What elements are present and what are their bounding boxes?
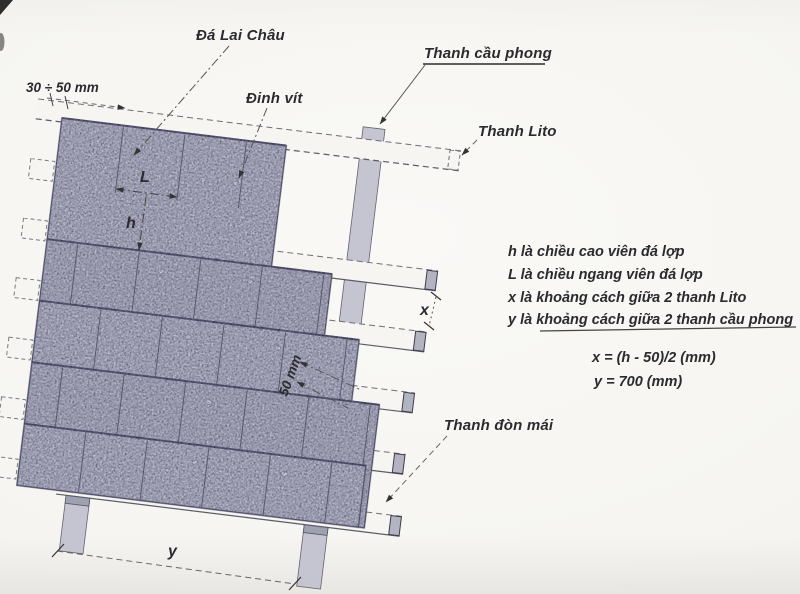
screw-hole — [205, 399, 212, 404]
screw-hole — [199, 177, 206, 182]
label-thanh-cau-phong: Thanh cầu phong — [424, 45, 552, 62]
label-thanh-lito: Thanh Lito — [478, 123, 557, 140]
label-dim-h: h — [126, 215, 136, 232]
scan-corner-artifact — [0, 0, 13, 15]
batten-end-cap — [389, 516, 402, 536]
label-dim-30-50: 30 ÷ 50 mm — [26, 80, 99, 95]
leader-thanh-lito — [462, 140, 477, 155]
label-da-lai-chau: Đá Lai Châu — [196, 27, 285, 44]
formula-x: x = (h - 50)/2 (mm) — [591, 350, 716, 366]
label-dim-x: x — [419, 302, 430, 319]
batten-end-cap — [425, 270, 438, 290]
batten-end-cap — [402, 392, 415, 412]
screw-hole — [192, 460, 199, 465]
screw-hole — [167, 173, 174, 178]
legend-block: h là chiều cao viên đá lợp L là chiều ng… — [507, 244, 793, 328]
formula-y: y = 700 (mm) — [593, 374, 682, 390]
screw-hole — [68, 161, 75, 166]
legend-line-y: y là khoảng cách giữa 2 thanh cầu phong — [507, 312, 793, 328]
roof-assembly — [0, 87, 462, 594]
legend-line-x: x là khoảng cách giữa 2 thanh Lito — [507, 290, 747, 306]
lito-batten-stub — [6, 337, 32, 360]
screw-hole — [247, 280, 254, 285]
screw-hole — [158, 269, 165, 274]
label-thanh-don-mai: Thanh đòn mái — [444, 417, 554, 434]
legend-line-L: L là chiều ngang viên đá lợp — [508, 267, 703, 283]
roof-tile-installation-diagram: Đá Lai Châu Đinh vít 30 ÷ 50 mm Thanh cầ… — [0, 0, 800, 594]
scan-edge-artifact — [0, 33, 5, 51]
screw-hole — [185, 334, 192, 339]
screw-hole — [274, 345, 281, 350]
legend-line-h: h là chiều cao viên đá lợp — [508, 244, 685, 260]
label-dim-L: L — [140, 169, 150, 186]
batten-end-cap — [413, 331, 426, 351]
dim-x-line — [429, 297, 436, 326]
scanned-roofing-diagram-page: Đá Lai Châu Đinh vít 30 ÷ 50 mm Thanh cầ… — [0, 0, 800, 594]
screw-hole — [232, 181, 239, 186]
screw-hole — [281, 471, 288, 476]
lito-batten-stub — [21, 218, 47, 241]
leader-thanh-cau-phong — [380, 65, 425, 124]
roof-structure-layer — [0, 87, 462, 594]
lito-batten-stub — [0, 397, 25, 420]
label-dim-y: y — [167, 543, 178, 560]
label-dinh-vit: Đinh vít — [246, 90, 303, 107]
dim-x-tick-bottom — [424, 322, 434, 330]
batten-end-cap — [392, 454, 405, 474]
screw-hole — [101, 165, 108, 170]
lito-batten-stub — [0, 456, 18, 479]
lito-batten-stub — [14, 278, 40, 301]
screw-hole — [295, 410, 302, 415]
lito-batten-stub — [28, 159, 54, 182]
